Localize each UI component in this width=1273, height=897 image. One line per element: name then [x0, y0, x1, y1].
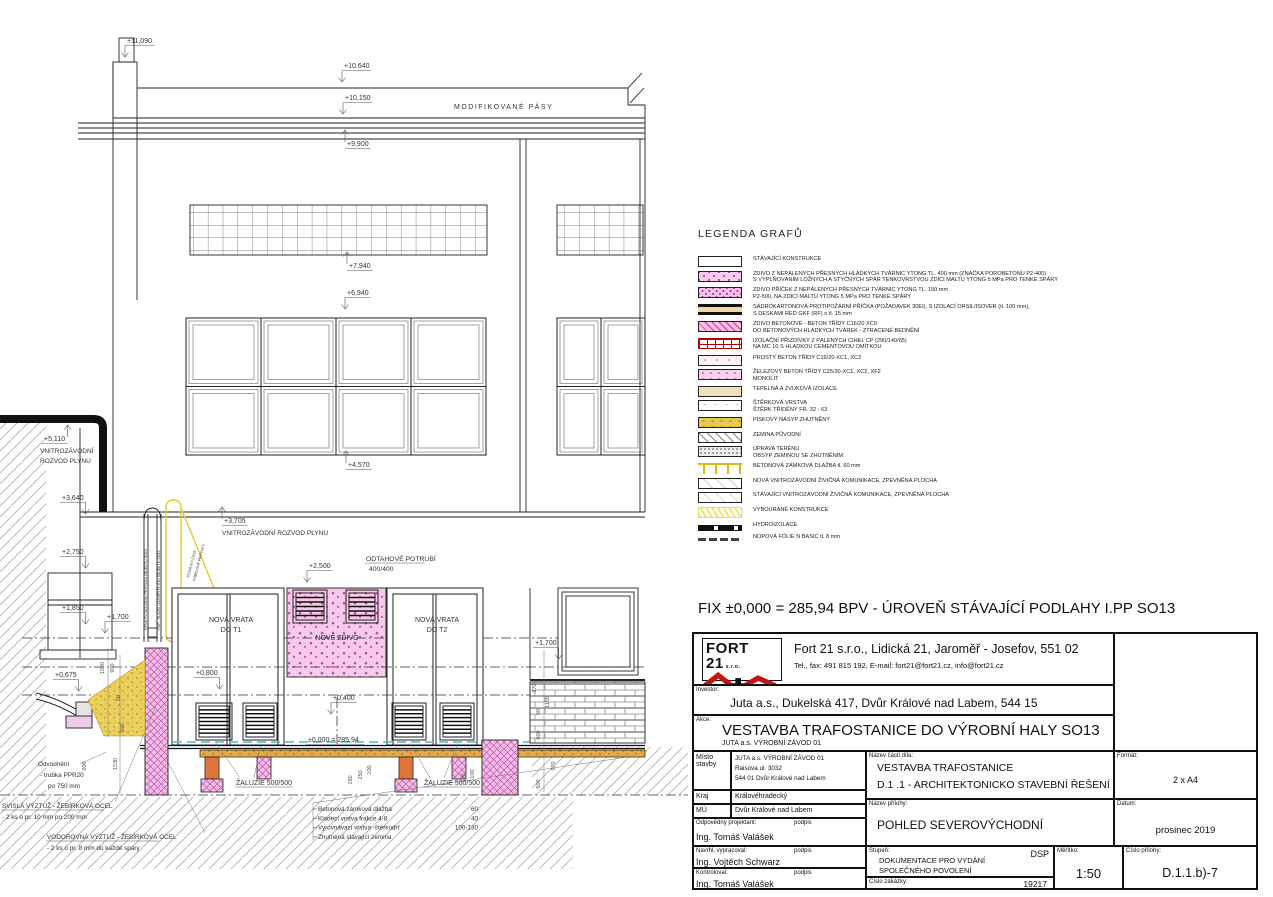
legend-swatch-sterk [698, 400, 742, 411]
kontroloval-name: Ing. Tomáš Valášek [696, 879, 774, 889]
dimension-text: 600 [82, 761, 88, 770]
legend-item: SÁDROKARTONOVÁ PROTIPOŽÁRNÍ PŘÍČKA (POŽA… [698, 304, 1263, 317]
legend: LEGENDA GRAFŮ STÁVAJÍCÍ KONSTRUKCEZDIVO … [698, 228, 1263, 545]
misto-line3: 544 01 Dvůr Králové nad Labem [735, 775, 826, 782]
drawing-label: - 2 ks o pr. 8 mm do každé spáry [47, 845, 141, 852]
nazev-prilohy-value: POHLED SEVEROVÝCHODNÍ [877, 818, 1043, 832]
legend-item-text: NOVÁ VNITROZÁVODNÍ ŽIVIČNÁ KOMUNIKACE, Z… [753, 478, 937, 485]
elevation-marker: +2,750 [62, 549, 84, 556]
layer-note-value: 100-130 [455, 825, 479, 832]
dimension-text: 100 [461, 773, 467, 782]
meritko-cell: Měřítko: 1:50 [1054, 846, 1123, 889]
drawing-label: MODIFIKOVANÉ PÁSY [454, 102, 553, 111]
kontroloval-label: Kontroloval: [696, 870, 728, 876]
navrhl-cell: Navrhl, vypracoval: podpis Ing. Vojtěch … [693, 846, 866, 868]
datum-cell: Datum: prosinec 2019 [1114, 799, 1257, 846]
stupen-label: Stupeň: [869, 848, 890, 854]
right-window [558, 588, 638, 675]
mu-label: MÚ [694, 805, 730, 814]
dimension-text: 600 [536, 779, 542, 788]
legend-swatch-sadro [698, 304, 742, 315]
foundation-left [145, 648, 168, 795]
podpis-label: podpis [794, 848, 812, 854]
elevation-marker: +4,570 [348, 462, 370, 469]
legend-swatch-beton2 [698, 369, 742, 380]
investor-value: Juta a.s., Dukelská 417, Dvůr Králové na… [730, 696, 1038, 710]
legend-item-text: STÁVAJÍCÍ VNITROZÁVODNÍ ŽIVIČNÁ KOMUNIKA… [753, 492, 949, 499]
dimension-text: 160 [348, 775, 354, 784]
dimension-text: 50 [536, 709, 542, 715]
legend-item: BETONOVÁ ZÁMKOVÁ DLAŽBA tl. 60 mm [698, 463, 1263, 474]
investor-cell: Investor: Juta a.s., Dukelská 417, Dvůr … [693, 685, 1114, 715]
drawing-label: ŽALUZIE 500/500 [236, 778, 292, 787]
cislo-prilohy-value: D.1.1.b)-7 [1124, 866, 1256, 880]
kraj-label: Kraj [694, 791, 730, 800]
dimension-text: 670 [532, 683, 538, 692]
drawing-label: VNITROZÁVODNÍ [40, 446, 94, 455]
legend-swatch-nopova [698, 538, 742, 541]
elevation-marker: +0,400 [333, 695, 355, 702]
legend-swatch-brickred [698, 338, 742, 349]
misto-label1: Místo [696, 754, 713, 761]
legend-swatch-hydro [698, 525, 742, 531]
company-cell: FORT 21s.r.o. Fort 21 s.r.o., Lidická 21… [693, 633, 1114, 685]
brick-wall [530, 682, 645, 743]
elevation-marker: +1,700 [535, 640, 557, 647]
kontroloval-cell: Kontroloval: podpis Ing. Tomáš Valášek [693, 868, 866, 889]
stupen-line2: SPOLEČNÉHO POVOLENÍ [879, 866, 972, 875]
misto-line1: JUTA a.s. VÝROBNÍ ZÁVOD 01 [735, 755, 824, 762]
legend-item: PÍSKOVÝ NÁSYP ZHUTNĚNÝ [698, 417, 1263, 428]
legend-swatch-komun2 [698, 492, 742, 503]
legend-item-text: NOPOVÁ FÓLIE N BASIC tl. 8 mm [753, 534, 840, 541]
legend-swatch-uprava [698, 446, 742, 457]
legend-item-text: ZEMINA PŮVODNÍ [753, 432, 801, 439]
legend-item: ZEMINA PŮVODNÍ [698, 432, 1263, 443]
elevation-marker: +3,705 [224, 518, 246, 525]
misto-line2: Raisova ul. 3032 [735, 765, 782, 772]
akce-label: Akce: [696, 717, 711, 723]
meritko-value: 1:50 [1055, 866, 1122, 881]
navrhl-label: Navrhl, vypracoval: [696, 848, 747, 854]
legend-swatch-komun1 [698, 478, 742, 489]
mu-label-cell: MÚ [693, 804, 731, 818]
kraj-value: Královéhradecký [732, 791, 865, 800]
layer-note-value: 40 [471, 815, 479, 822]
drawing-label: VODOROVNÁ VÝZTUŽ - ŽEBÍRKOVÁ OCEL [47, 832, 177, 841]
format-cell: Formát: 2 x A4 [1114, 751, 1257, 799]
drawing-label: Odvodnění [38, 761, 69, 768]
legend-item: NOPOVÁ FÓLIE N BASIC tl. 8 mm [698, 534, 1263, 541]
elevation-marker: +6,940 [347, 290, 369, 297]
akce-sub: JUTA a.s. VÝROBNÍ ZÁVOD 01 [722, 740, 821, 747]
dimension-text: 100 [367, 765, 373, 774]
cislo-prilohy-cell: Číslo přílohy: D.1.1.b)-7 [1123, 846, 1257, 889]
mu-value-cell: Dvůr Králové nad Labem [731, 804, 866, 818]
dimension-text: 250 [358, 770, 364, 779]
drawing-label: NOVÉ ZDIVO [315, 633, 359, 642]
cislo-zakazky-cell: Číslo zakázky: 19217 [866, 877, 1054, 889]
drawing-label: HUP - HLAVNÍ UZÁVĚR PLYNU OBJEKTU SO13 [156, 551, 161, 630]
elevation-marker: +3,640 [62, 495, 84, 502]
drawing-label: NOVÁ PLYNOVODNÍ PŘÍPOJKA OBJEKTU SO13 [143, 549, 148, 630]
stupen-line1: DOKUMENTACE PRO VYDÁNÍ [879, 856, 985, 865]
kraj-value-cell: Královéhradecký [731, 790, 866, 804]
legend-item: STÁVAJÍCÍ VNITROZÁVODNÍ ŽIVIČNÁ KOMUNIKA… [698, 492, 1263, 503]
legend-item-text: ZDIVO PŘÍČEK Z NEPÁLENÝCH PŘESNÝCH TVÁRN… [753, 287, 948, 300]
dimension-text: 600 [536, 730, 542, 739]
legend-swatch-vybourane [698, 507, 742, 518]
elevation-marker: +5,110 [44, 436, 65, 443]
format-label: Formát: [1117, 753, 1138, 759]
legend-item-text: IZOLAČNÍ PŘIZDÍVKY Z PÁLENÝCH CIHEL CP (… [753, 338, 907, 351]
drawing-label: SVISLÁ VÝZTUŽ - ŽEBÍRKOVÁ OCEL [2, 801, 113, 810]
legend-item-text: ÚPRAVA TERÉNUOBSYP ZEMINOU SE ZHUTNĚNÍM [753, 446, 843, 459]
dimension-text: 1150 [545, 696, 551, 708]
dimension-text: 100 [470, 769, 476, 778]
drawing-label: ODTAHOVÉ POTRUBÍ [366, 554, 436, 563]
elevation-marker: +9,900 [347, 141, 369, 148]
layer-note-value: 60 [471, 806, 479, 813]
nazev-prilohy-label: Název přílohy: [869, 801, 907, 807]
elevation-marker: +0,675 [55, 672, 77, 679]
elevation-marker: +7,940 [349, 263, 371, 270]
legend-item-text: PÍSKOVÝ NÁSYP ZHUTNĚNÝ [753, 417, 830, 424]
legend-item: NOVÁ VNITROZÁVODNÍ ŽIVIČNÁ KOMUNIKACE, Z… [698, 478, 1263, 489]
elevation-marker: +11,090 [127, 38, 152, 45]
format-value: 2 x A4 [1115, 775, 1256, 785]
fort21-logo-zigzag [703, 671, 779, 685]
dimension-text: 900 [110, 663, 116, 672]
legend-item-text: VYBOURANÉ KONSTRUKCE [753, 507, 829, 514]
company-name: Fort 21 s.r.o., Lidická 21, Jaroměř - Jo… [794, 642, 1079, 656]
cislo-zakazky-label: Číslo zakázky: [869, 879, 908, 885]
odp-label: Odpovědný projektant: [696, 820, 756, 826]
fort21-logo: FORT 21s.r.o. [702, 638, 782, 681]
meritko-label: Měřítko: [1057, 848, 1079, 854]
legend-swatch-tepelna [698, 386, 742, 397]
podpis-label: podpis [794, 870, 812, 876]
legend-item-text: TEPELNÁ A ZVUKOVÁ IZOLACE [753, 386, 837, 393]
legend-swatch-pinkhatch [698, 321, 742, 332]
elevation-marker: +1,850 [62, 605, 84, 612]
page: { "legend": { "title": "LEGENDA GRAFŮ", … [0, 0, 1273, 897]
dimension-text: 1020 [100, 662, 106, 674]
layer-note-name: Vyrovnávací vrstva -štěrkodrť [318, 825, 401, 832]
datum-value: prosinec 2019 [1115, 825, 1256, 836]
legend-item-text: BETONOVÁ ZÁMKOVÁ DLAŽBA tl. 60 mm [753, 463, 860, 470]
elevation-marker: +10,640 [344, 63, 370, 70]
drawing-label: 400/400 [369, 566, 394, 573]
misto-label2: stavby [696, 761, 716, 768]
drawing-label: DO T1 [221, 627, 242, 634]
nazev-casti-label: Název části díla: [869, 753, 913, 759]
elevation-marker: +1,700 [107, 614, 129, 621]
nazev-prilohy-cell: Název přílohy: POHLED SEVEROVÝCHODNÍ [866, 799, 1114, 846]
company-contact: Tel., fax: 491 815 192, E-mail: fort21@f… [794, 661, 1004, 670]
stupen-badge: DSP [1030, 849, 1049, 859]
fix-level-note: FIX ±0,000 = 285,94 BPV - ÚROVEŇ STÁVAJÍ… [698, 600, 1175, 617]
legend-item: ZDIVO BETONOVÉ - BETON TŘÍDY C16/20 XC0D… [698, 321, 1263, 334]
legend-items: STÁVAJÍCÍ KONSTRUKCEZDIVO Z NEPÁLENÝCH P… [698, 256, 1263, 541]
legend-item-text: SÁDROKARTONOVÁ PROTIPOŽÁRNÍ PŘÍČKA (POŽA… [753, 304, 1030, 317]
right-wall [530, 588, 645, 743]
legend-swatch-ytong2 [698, 287, 742, 298]
nazev-casti-2: D.1 .1 - ARCHITEKTONICKO STAVEBNÍ ŘEŠENÍ [877, 779, 1110, 791]
foundation-right [482, 740, 518, 795]
misto-label-cell: Místostavby [693, 751, 731, 790]
legend-item: HYDROIZOLACE [698, 522, 1263, 531]
elevation-drawing: +11,090+10,640+10,150+9,900+7,940+6,940+… [0, 0, 690, 897]
legend-swatch-pisek [698, 417, 742, 428]
gas-valve [148, 628, 157, 637]
drawing-label: VNITROZÁVODNÍ ROZVOD PLYNU [222, 528, 328, 537]
legend-item: STÁVAJÍCÍ KONSTRUKCE [698, 256, 1263, 267]
drawing-label: NOVÁ VRATA [415, 615, 459, 624]
nazev-casti-1: VESTAVBA TRAFOSTANICE [877, 762, 1013, 774]
cislo-zakazky-value: 19217 [1023, 879, 1047, 889]
misto-value-cell: JUTA a.s. VÝROBNÍ ZÁVOD 01 Raisova ul. 3… [731, 751, 866, 790]
dimension-text: 970 [551, 761, 557, 770]
elevation-marker: +2,500 [309, 563, 331, 570]
kraj-label-cell: Kraj [693, 790, 731, 804]
drawing-label: - trubka PPR20 [40, 772, 84, 779]
datum-label: Datum: [1117, 801, 1136, 807]
legend-swatch-beton1 [698, 355, 742, 366]
stupen-cell: Stupeň: DSP DOKUMENTACE PRO VYDÁNÍ SPOLE… [866, 846, 1054, 877]
legend-item-text: ŠTĚRKOVÁ VRSTVAŠTĚRK TŘÍDĚNÝ FR. 32 - 63 [753, 400, 827, 413]
navrhl-name: Ing. Vojtěch Schwarz [696, 857, 780, 867]
podpis-label: podpis [794, 820, 812, 826]
elevation-marker: ±0,000 = 285,94 [308, 737, 359, 744]
layer-note-name: Zhutněná stávající zemina [318, 834, 392, 841]
nazev-casti-cell: Název části díla: VESTAVBA TRAFOSTANICE … [866, 751, 1114, 799]
mu-value: Dvůr Králové nad Labem [732, 805, 865, 814]
legend-title: LEGENDA GRAFŮ [698, 228, 1263, 240]
glass-block-band-left [190, 205, 487, 255]
dimension-text: 600 [120, 723, 126, 732]
legend-item: PROSTÝ BETON TŘÍDY C16/20-XC1, XC2 [698, 355, 1263, 366]
dimension-text: 1530 [113, 758, 119, 770]
legend-item: ZDIVO Z NEPÁLENÝCH PŘESNÝCH HLADKÝCH TVÁ… [698, 271, 1263, 284]
legend-swatch-dlazba [698, 463, 742, 474]
dimension-text: 50 [116, 695, 122, 701]
title-block: FORT 21s.r.o. Fort 21 s.r.o., Lidická 21… [692, 632, 1258, 890]
layer-note-name: Betonová zámková dlažba [318, 806, 392, 813]
legend-item: ÚPRAVA TERÉNUOBSYP ZEMINOU SE ZHUTNĚNÍM [698, 446, 1263, 459]
legend-item: IZOLAČNÍ PŘIZDÍVKY Z PÁLENÝCH CIHEL CP (… [698, 338, 1263, 351]
legend-item-text: STÁVAJÍCÍ KONSTRUKCE [753, 256, 821, 263]
legend-item-text: ZDIVO Z NEPÁLENÝCH PŘESNÝCH HLADKÝCH TVÁ… [753, 271, 1058, 284]
legend-item: ŽELEZOVÝ BETON TŘÍDY C25/30-XC1, XC2, XF… [698, 369, 1263, 382]
chimney [113, 62, 137, 118]
cislo-prilohy-label: Číslo přílohy: [1126, 848, 1161, 854]
legend-item-text: ŽELEZOVÝ BETON TŘÍDY C25/30-XC1, XC2, XF… [753, 369, 881, 382]
legend-item-text: ZDIVO BETONOVÉ - BETON TŘÍDY C16/20 XC0D… [753, 321, 919, 334]
elevation-marker: +0,800 [196, 670, 218, 677]
logo-sub: s.r.o. [726, 664, 741, 670]
legend-swatch-ytong [698, 271, 742, 282]
legend-item-text: PROSTÝ BETON TŘÍDY C16/20-XC1, XC2 [753, 355, 861, 362]
legend-swatch-zemina [698, 432, 742, 443]
window-grids [186, 318, 645, 455]
drawing-label: NOVÁ VRATA [209, 615, 253, 624]
drawing-label: - 2 ks o pr. 10 mm po 200 mm [2, 814, 87, 821]
elevation-marker: +10,150 [345, 95, 371, 102]
odp-name: Ing. Tomáš Valášek [696, 832, 774, 842]
legend-item: VYBOURANÉ KONSTRUKCE [698, 507, 1263, 518]
glass-block-band-right [557, 205, 643, 255]
legend-item: TEPELNÁ A ZVUKOVÁ IZOLACE [698, 386, 1263, 397]
legend-item: ŠTĚRKOVÁ VRSTVAŠTĚRK TŘÍDĚNÝ FR. 32 - 63 [698, 400, 1263, 413]
investor-label: Investor: [696, 687, 719, 693]
layer-note-name: Kladecí vrstva frakce 4-8 [318, 815, 388, 822]
akce-cell: Akce: VESTAVBA TRAFOSTANICE DO VÝROBNÍ H… [693, 715, 1114, 751]
legend-item: ZDIVO PŘÍČEK Z NEPÁLENÝCH PŘESNÝCH TVÁRN… [698, 287, 1263, 300]
drawing-label: ROZVOD PLYNU [40, 458, 91, 465]
empty-cell [1114, 633, 1257, 751]
akce-value: VESTAVBA TRAFOSTANICE DO VÝROBNÍ HALY SO… [722, 722, 1100, 739]
drawing-label: DO T2 [427, 627, 448, 634]
legend-item-text: HYDROIZOLACE [753, 522, 797, 529]
drawing-label: po 750 mm [48, 783, 80, 790]
odp-cell: Odpovědný projektant: podpis Ing. Tomáš … [693, 818, 866, 846]
legend-swatch-plain [698, 256, 742, 267]
